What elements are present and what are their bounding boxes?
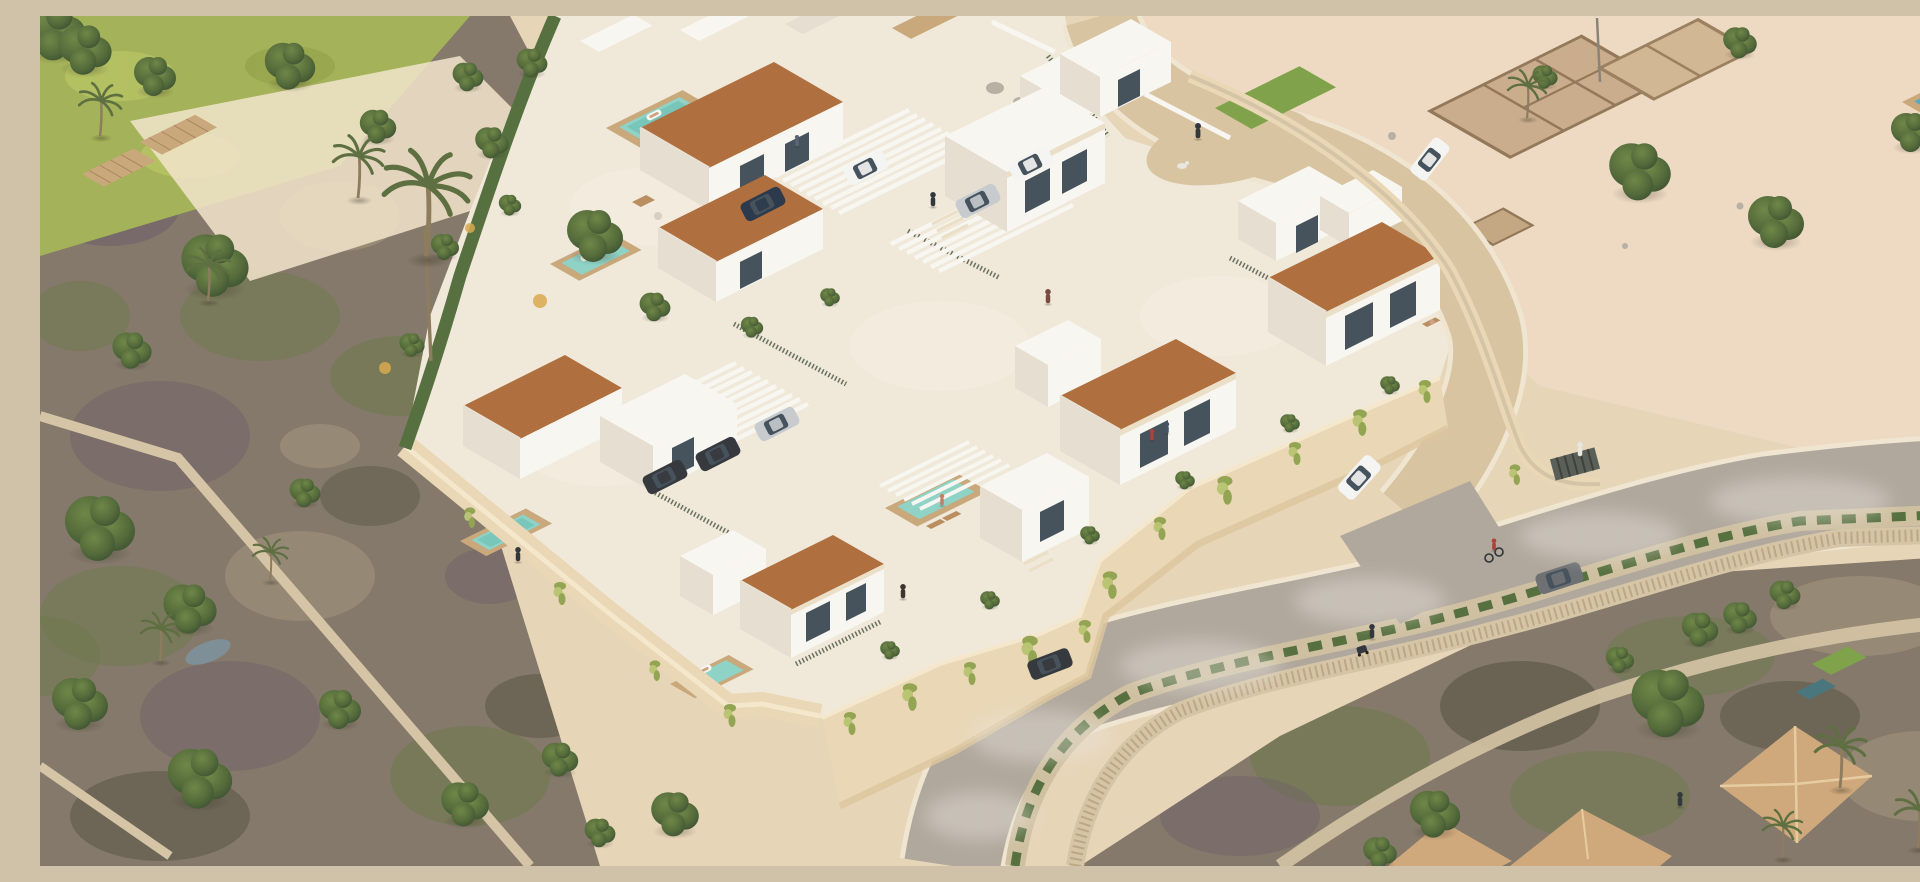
person-lounger [1429, 319, 1434, 324]
architectural-rendering: Aerial isometric rendering of a walled M… [40, 16, 1920, 866]
aerial-rendering-canvas [40, 16, 1920, 866]
